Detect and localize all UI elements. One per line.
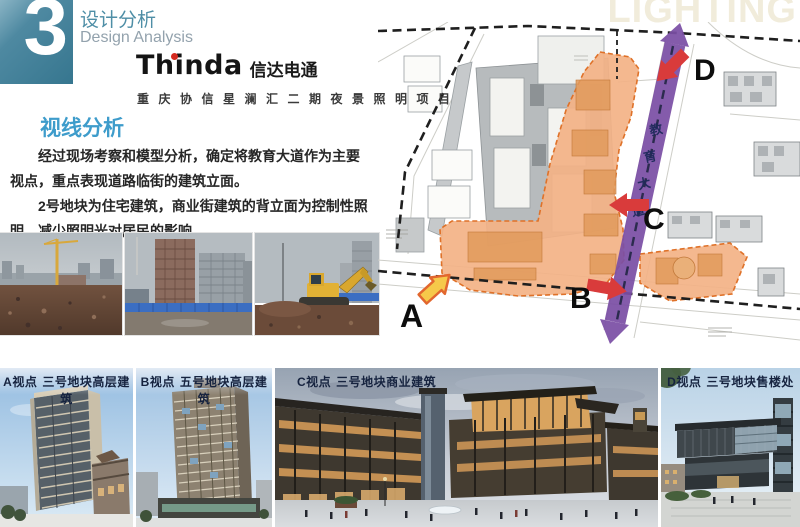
viewpoint-photo-c: C视点三号地块商业建筑 xyxy=(275,368,658,527)
slide-title-en: Design Analysis xyxy=(80,29,193,47)
marker-c: C xyxy=(643,203,665,236)
viewpoint-label-d: D视点三号地块售楼处 xyxy=(661,368,800,390)
section-number: 3 xyxy=(24,0,69,67)
analysis-heading: 视线分析 xyxy=(40,112,124,142)
viewpoint-photo-d: D视点三号地块售楼处 xyxy=(661,368,800,527)
marker-a: A xyxy=(400,298,423,334)
logo-latin: Thinda xyxy=(136,50,243,81)
viewpoint-label-c: C视点三号地块商业建筑 xyxy=(275,368,658,390)
slide: LIGHTING 3 设计分析 Design Analysis Thinda 信… xyxy=(0,0,800,527)
fountain xyxy=(429,506,461,514)
analysis-paragraph-1: 经过现场考察和模型分析，确定将教育大道作为主要视点，重点表现道路临街的建筑立面。 xyxy=(10,144,372,194)
analysis-text: 经过现场考察和模型分析，确定将教育大道作为主要视点，重点表现道路临街的建筑立面。… xyxy=(10,144,372,244)
viewpoint-label-b: B视点五号地块高层建筑 xyxy=(136,368,272,395)
brick-building xyxy=(155,239,195,305)
construction-photo-2 xyxy=(125,233,252,335)
viewpoint-label-a: A视点三号地块高层建筑 xyxy=(0,368,133,395)
brand-logo: Thinda 信达电通 xyxy=(136,50,318,81)
project-name: 重庆协信星澜汇二期夜景照明项目 xyxy=(137,90,460,107)
logo-red-dot-icon xyxy=(171,53,178,60)
construction-photo-3 xyxy=(255,233,379,335)
section-number-block: 3 xyxy=(0,0,73,84)
logo-chinese: 信达电通 xyxy=(250,50,318,81)
slide-title-zh: 设计分析 xyxy=(80,5,156,32)
viewpoint-photo-b: B视点五号地块高层建筑 xyxy=(136,368,272,527)
site-plan-map: 教 育 大 道 A B C D xyxy=(378,22,800,360)
marker-d: D xyxy=(694,54,716,87)
construction-photo-1 xyxy=(0,233,122,335)
blue-fence xyxy=(125,303,252,312)
marker-b: B xyxy=(570,282,592,315)
viewpoint-photo-a: A视点三号地块高层建筑 xyxy=(0,368,133,527)
